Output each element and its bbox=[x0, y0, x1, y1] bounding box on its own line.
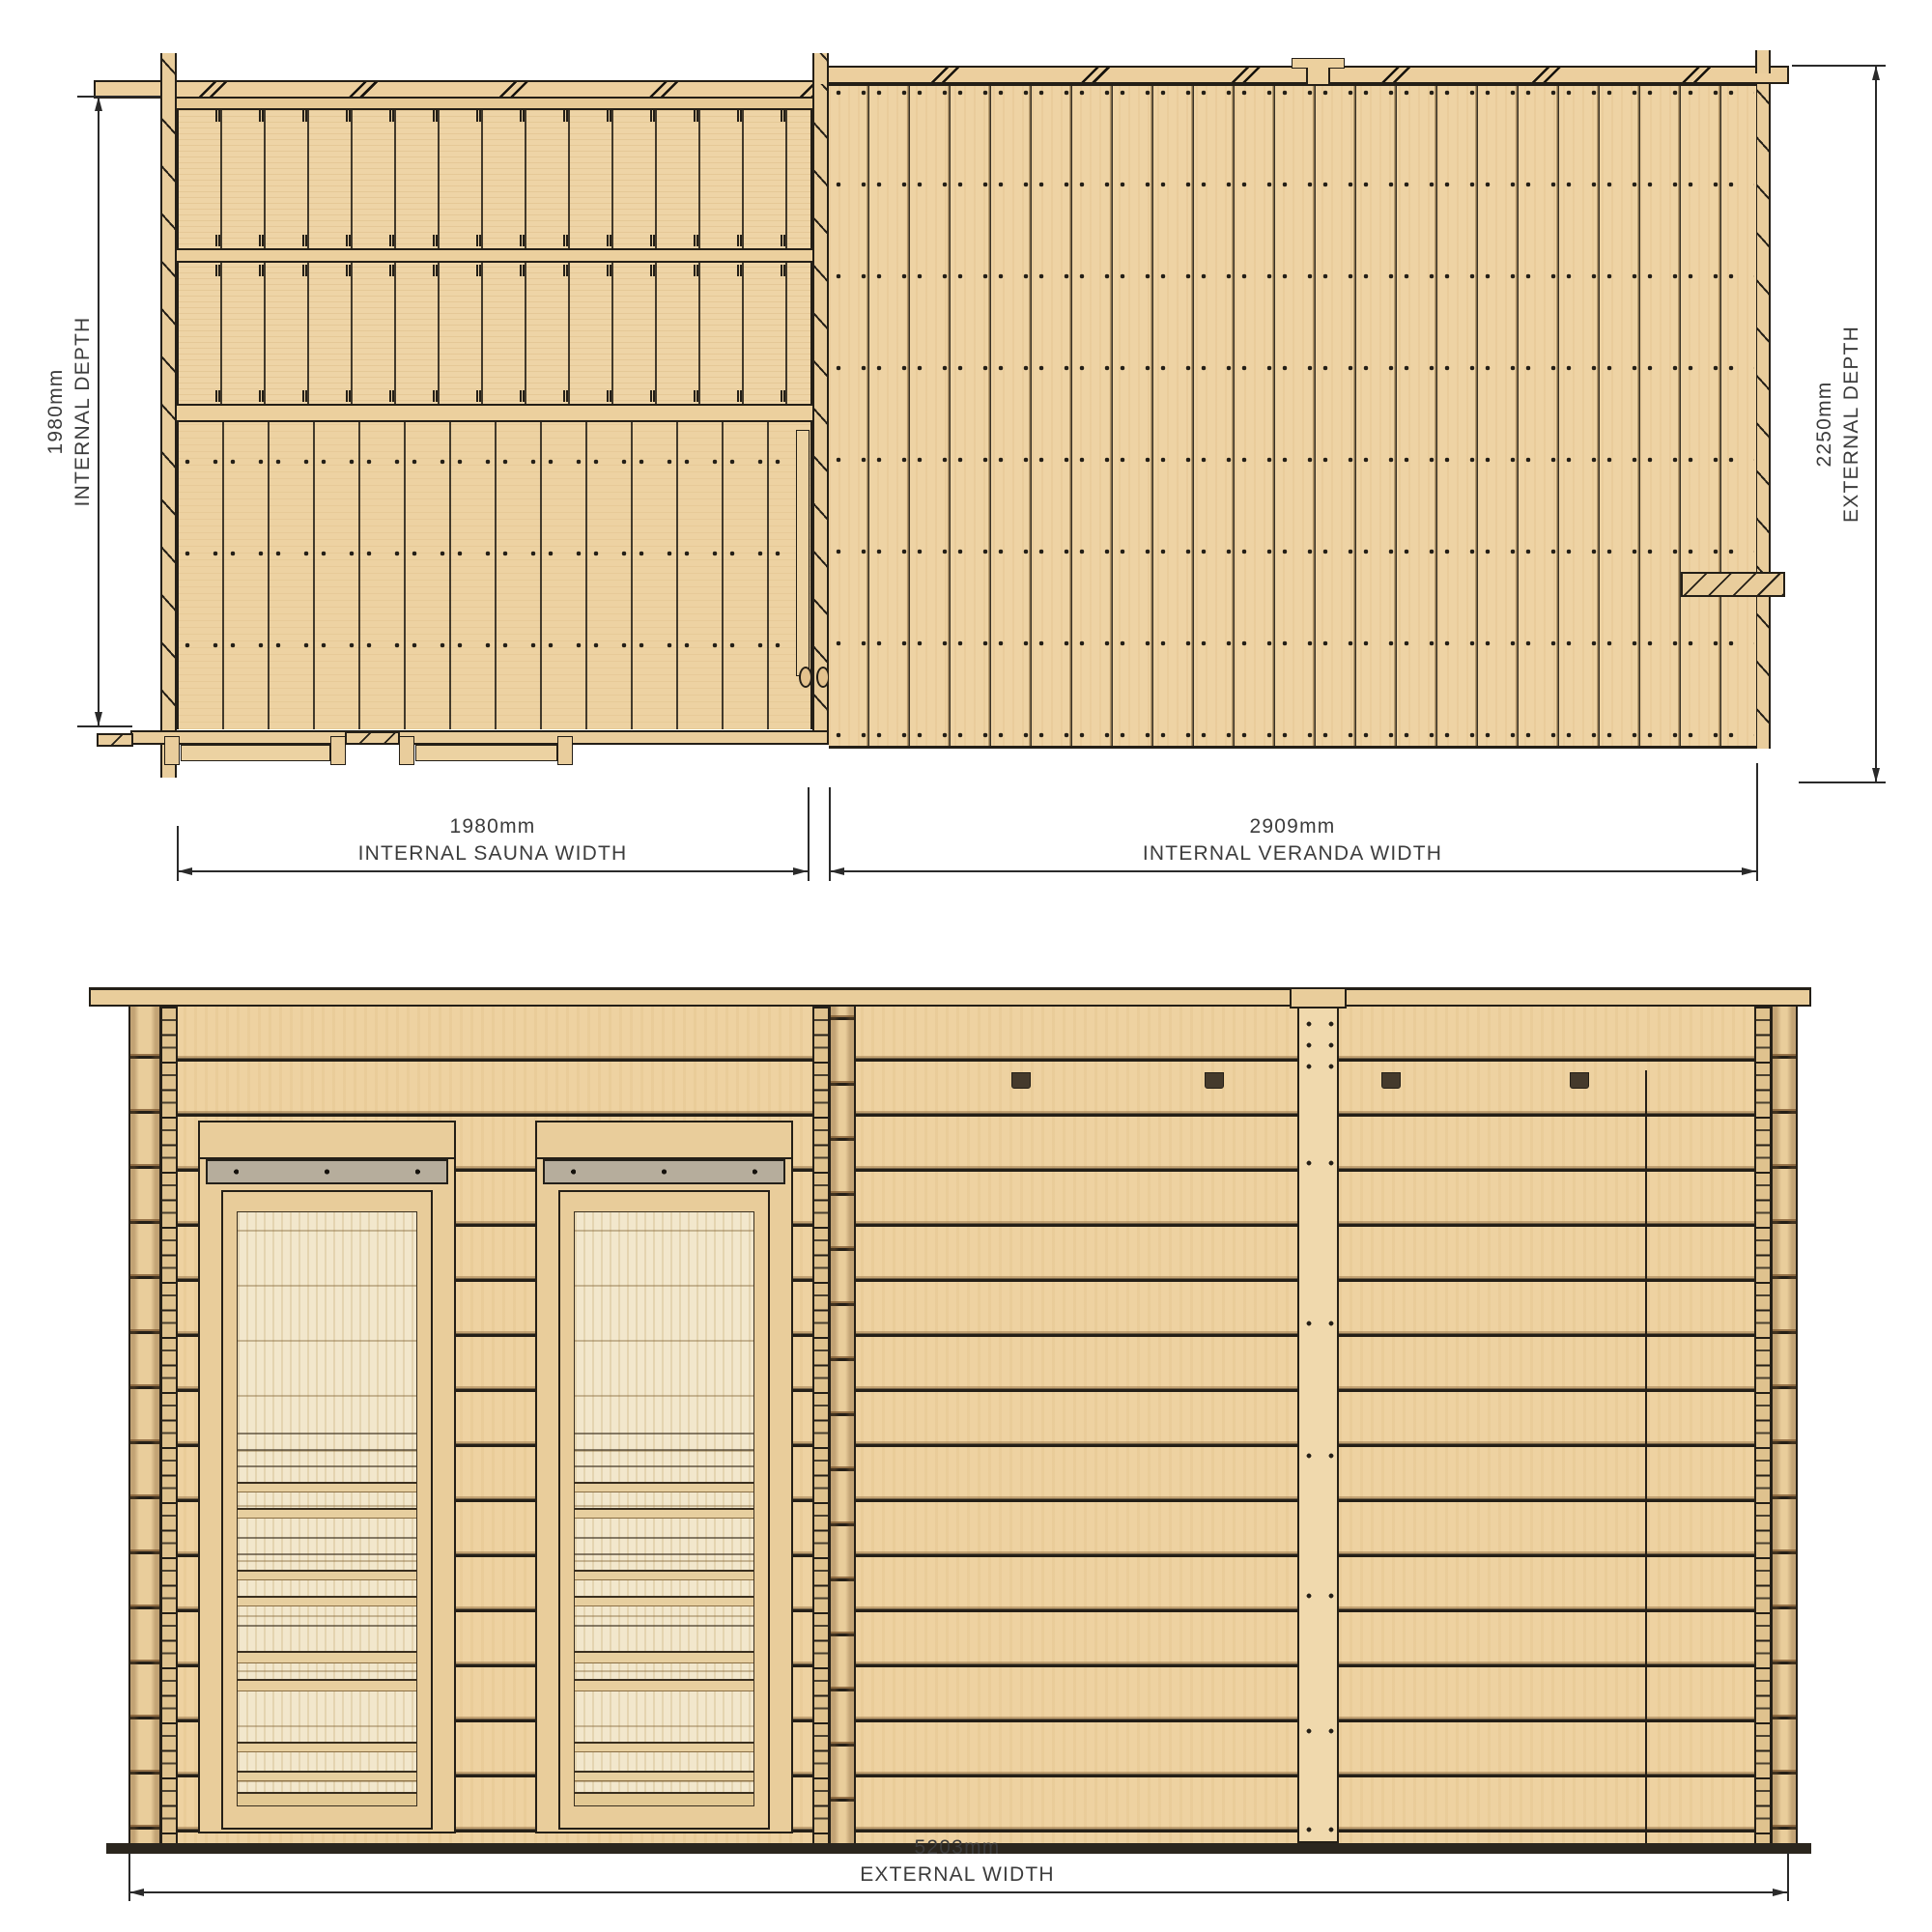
bench-slat bbox=[238, 1742, 416, 1752]
sauna-floor-boards bbox=[177, 422, 812, 729]
bench-bottom-rail bbox=[238, 1792, 416, 1806]
screw-row bbox=[831, 731, 1754, 739]
corner-post-top-left bbox=[160, 53, 177, 99]
veranda-centre-post bbox=[1297, 1007, 1339, 1843]
divider-door-leaf-plan bbox=[796, 430, 810, 676]
ceiling-joint-ticks bbox=[177, 110, 812, 122]
bench-slat bbox=[575, 1771, 753, 1781]
ceiling-top-trim bbox=[177, 99, 812, 110]
dim-label-internal-depth: 1980mm INTERNAL DEPTH bbox=[43, 247, 97, 576]
dim-name: EXTERNAL DEPTH bbox=[1838, 260, 1865, 588]
dim-arrow bbox=[793, 867, 808, 875]
bench-slat bbox=[238, 1482, 416, 1492]
drawing-sheet: 1980mm INTERNAL DEPTH 2250mm EXTERNAL DE… bbox=[0, 0, 1932, 1932]
door-knob bbox=[799, 667, 812, 688]
bench-line bbox=[238, 1625, 416, 1627]
extension-line bbox=[1756, 763, 1758, 881]
dim-name: INTERNAL SAUNA WIDTH bbox=[299, 840, 686, 867]
bench-line bbox=[238, 1465, 416, 1467]
vent-slot bbox=[1205, 1072, 1224, 1089]
screw-row bbox=[831, 548, 1754, 555]
dim-label-sauna-width: 1980mm INTERNAL SAUNA WIDTH bbox=[299, 813, 686, 867]
sauna-glass-door-left[interactable] bbox=[198, 1121, 456, 1833]
dim-value: 1980mm bbox=[43, 247, 70, 576]
door-leaf-plan bbox=[415, 745, 557, 761]
roof-edge-elevation bbox=[89, 987, 1811, 1007]
dim-arrow bbox=[1872, 768, 1880, 782]
front-sill-band bbox=[130, 730, 829, 745]
bench-slat bbox=[238, 1651, 416, 1663]
bench-slat bbox=[575, 1508, 753, 1519]
door-jamb bbox=[399, 736, 414, 765]
bench-line bbox=[575, 1625, 753, 1627]
bench-line bbox=[575, 1449, 753, 1451]
door-glass-panel bbox=[237, 1211, 417, 1806]
bench-line bbox=[575, 1537, 753, 1539]
door-jamb bbox=[330, 736, 346, 765]
bench-slat bbox=[238, 1570, 416, 1580]
ceiling-joint-ticks bbox=[177, 390, 812, 402]
dim-line-external-width bbox=[128, 1891, 1787, 1893]
screw-row bbox=[831, 364, 1754, 372]
door-transom-bar bbox=[543, 1159, 785, 1184]
dim-label-veranda-width: 2909mm INTERNAL VERANDA WIDTH bbox=[1099, 813, 1486, 867]
ceiling-joint-ticks bbox=[177, 235, 812, 246]
plan-wall-right bbox=[1755, 84, 1771, 749]
screw-row bbox=[831, 89, 1754, 97]
extension-line bbox=[77, 96, 160, 98]
bench-slat bbox=[238, 1596, 416, 1606]
screw-row bbox=[179, 641, 810, 649]
dim-arrow bbox=[95, 712, 102, 726]
dim-name: EXTERNAL WIDTH bbox=[764, 1861, 1151, 1889]
door-leaf-plan bbox=[181, 745, 330, 761]
veranda-front-wall bbox=[829, 1007, 1756, 1843]
dim-value: 2250mm bbox=[1811, 260, 1838, 588]
corner-post-top-middle bbox=[812, 53, 829, 85]
screw-row bbox=[831, 639, 1754, 647]
bench-line bbox=[575, 1465, 753, 1467]
dim-arrow bbox=[830, 867, 844, 875]
plan-wall-divider bbox=[812, 84, 829, 734]
dim-name: INTERNAL DEPTH bbox=[70, 247, 97, 576]
bench-slat bbox=[575, 1651, 753, 1663]
bench-slat bbox=[575, 1679, 753, 1691]
sauna-floor-header-beam bbox=[177, 404, 812, 422]
bench-line bbox=[238, 1537, 416, 1539]
vent-slot bbox=[1011, 1072, 1031, 1089]
corner-post-top-right bbox=[1755, 50, 1771, 73]
door-knob bbox=[816, 667, 830, 688]
ceiling-mid-joint bbox=[177, 248, 812, 263]
bench-slat bbox=[238, 1679, 416, 1691]
log-ends-middle bbox=[829, 1007, 856, 1843]
veranda-post-cap bbox=[1290, 987, 1347, 1009]
dim-label-external-depth: 2250mm EXTERNAL DEPTH bbox=[1811, 260, 1865, 588]
bench-slat bbox=[575, 1596, 753, 1606]
log-end-grain-middle bbox=[812, 1007, 830, 1843]
bench-line bbox=[238, 1449, 416, 1451]
sauna-roof-edge bbox=[94, 80, 828, 99]
extension-line bbox=[77, 725, 132, 727]
plan-wall-left bbox=[160, 97, 177, 778]
extension-line bbox=[808, 787, 810, 881]
dim-name: INTERNAL VERANDA WIDTH bbox=[1099, 840, 1486, 867]
dim-line-veranda-width bbox=[829, 870, 1756, 872]
bench-slat bbox=[575, 1570, 753, 1580]
sauna-glass-door-right[interactable] bbox=[535, 1121, 793, 1833]
dim-label-external-width: 5203mm EXTERNAL WIDTH bbox=[764, 1834, 1151, 1888]
screw-row bbox=[179, 550, 810, 557]
dim-value: 2909mm bbox=[1099, 813, 1486, 840]
plan-view: 1980mm INTERNAL DEPTH 2250mm EXTERNAL DE… bbox=[0, 0, 1932, 908]
screw-row bbox=[831, 181, 1754, 188]
bench-line bbox=[238, 1553, 416, 1555]
screw-row bbox=[831, 456, 1754, 464]
dim-value: 1980mm bbox=[299, 813, 686, 840]
screw-row bbox=[831, 272, 1754, 280]
dim-arrow bbox=[1773, 1889, 1787, 1896]
bench-bottom-rail bbox=[575, 1792, 753, 1806]
bench-slat bbox=[575, 1482, 753, 1492]
door-jamb bbox=[557, 736, 573, 765]
bench-slat bbox=[575, 1742, 753, 1752]
dim-arrow bbox=[178, 867, 192, 875]
door-transom-bar bbox=[206, 1159, 448, 1184]
dim-arrow bbox=[95, 97, 102, 111]
front-elevation-view: 5203mm EXTERNAL WIDTH bbox=[0, 966, 1932, 1932]
dim-value: 5203mm bbox=[764, 1834, 1151, 1861]
door-glass-panel bbox=[574, 1211, 754, 1806]
bench-line bbox=[575, 1553, 753, 1555]
bench-slat bbox=[238, 1508, 416, 1519]
dim-arrow bbox=[1742, 867, 1756, 875]
log-end-grain-right bbox=[1754, 1007, 1772, 1843]
veranda-board-seam bbox=[1645, 1070, 1647, 1843]
veranda-front-step bbox=[1681, 572, 1785, 597]
bench-line bbox=[238, 1433, 416, 1435]
dim-line-sauna-width bbox=[177, 870, 808, 872]
vent-slot bbox=[1570, 1072, 1589, 1089]
dim-arrow bbox=[129, 1889, 144, 1896]
screw-row bbox=[179, 458, 810, 466]
door-jamb bbox=[164, 736, 180, 765]
extension-line bbox=[1787, 1853, 1789, 1901]
log-end-grain-left bbox=[160, 1007, 178, 1843]
bench-line bbox=[575, 1433, 753, 1435]
front-sill-left-ext bbox=[97, 733, 133, 747]
dim-arrow bbox=[1872, 66, 1880, 80]
log-ends-left bbox=[128, 1007, 161, 1843]
veranda-deck-front-edge bbox=[829, 746, 1756, 749]
front-sill-centre-hatch bbox=[345, 731, 400, 745]
vent-slot bbox=[1381, 1072, 1401, 1089]
bench-slat bbox=[238, 1771, 416, 1781]
ceiling-joint-ticks bbox=[177, 265, 812, 276]
dim-line-internal-depth bbox=[98, 97, 99, 726]
log-ends-right bbox=[1771, 1007, 1798, 1843]
dim-line-external-depth bbox=[1875, 66, 1877, 782]
